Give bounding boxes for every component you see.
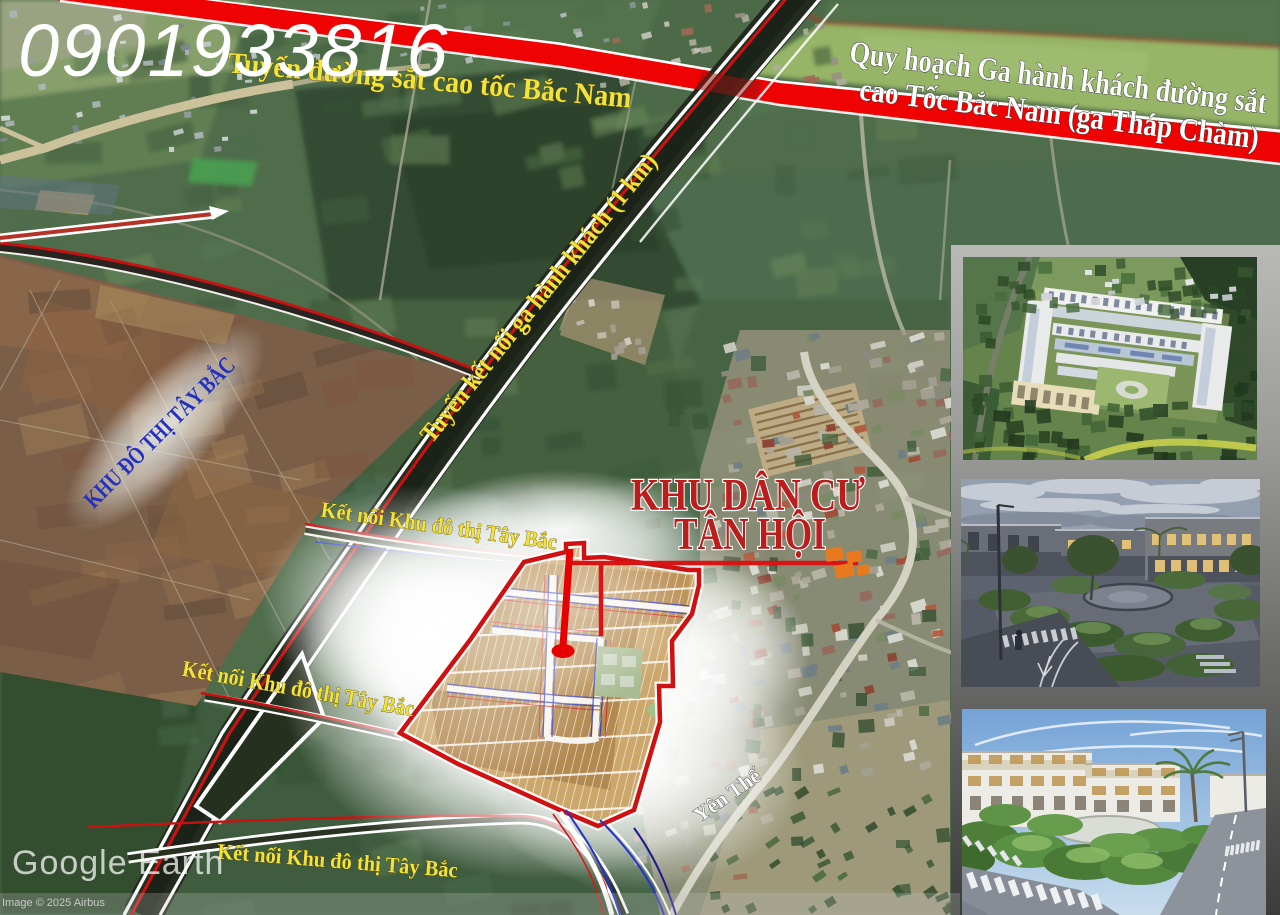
svg-text:0901933816: 0901933816 [18, 9, 450, 92]
svg-text:Google Earth: Google Earth [12, 844, 224, 882]
svg-text:TÂN HỘI: TÂN HỘI [674, 509, 826, 559]
